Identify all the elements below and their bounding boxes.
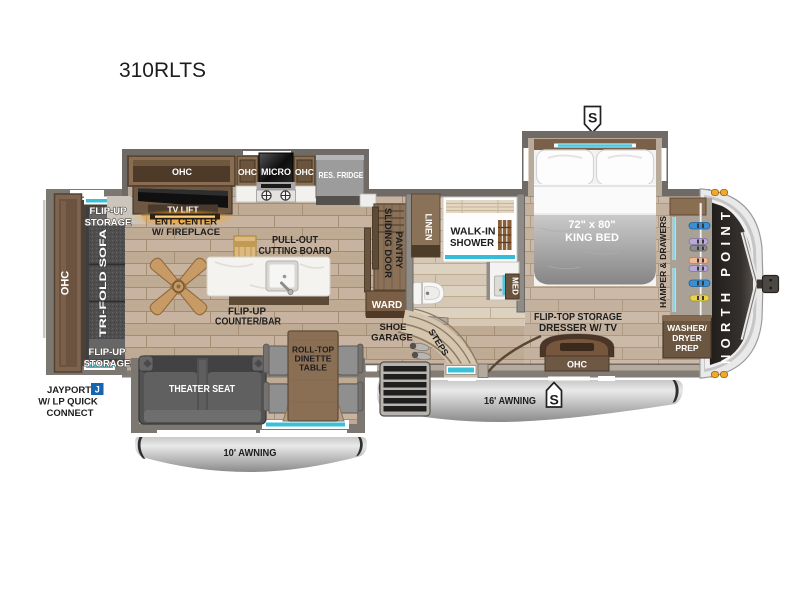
svg-text:STORAGE: STORAGE bbox=[84, 359, 131, 370]
svg-text:KING BED: KING BED bbox=[565, 232, 619, 244]
svg-text:HAMPER & DRAWERS: HAMPER & DRAWERS bbox=[658, 216, 668, 308]
svg-text:FLIP-TOP STORAGE: FLIP-TOP STORAGE bbox=[534, 312, 622, 323]
svg-text:W/ FIREPLACE: W/ FIREPLACE bbox=[152, 227, 220, 238]
svg-text:SHOE: SHOE bbox=[380, 322, 407, 333]
svg-text:10' AWNING: 10' AWNING bbox=[224, 447, 277, 459]
svg-text:LINEN: LINEN bbox=[424, 214, 434, 241]
svg-text:TABLE: TABLE bbox=[299, 363, 327, 373]
svg-text:DRESSER W/ TV: DRESSER W/ TV bbox=[539, 323, 617, 334]
svg-text:GARAGE: GARAGE bbox=[371, 333, 413, 344]
svg-text:COUNTER/BAR: COUNTER/BAR bbox=[215, 316, 281, 328]
svg-text:PREP: PREP bbox=[675, 343, 698, 353]
svg-text:OHC: OHC bbox=[60, 271, 72, 296]
svg-text:WASHER/: WASHER/ bbox=[667, 323, 707, 333]
svg-text:J: J bbox=[95, 385, 100, 395]
svg-text:DRYER: DRYER bbox=[672, 333, 701, 343]
svg-text:OHC: OHC bbox=[567, 360, 588, 370]
svg-text:SHOWER: SHOWER bbox=[450, 238, 495, 249]
svg-text:S: S bbox=[550, 392, 559, 408]
svg-text:RES. FRIDGE: RES. FRIDGE bbox=[319, 170, 364, 180]
svg-text:OHC: OHC bbox=[238, 167, 257, 177]
svg-text:STORAGE: STORAGE bbox=[85, 218, 132, 229]
svg-text:TRI-FOLD SOFA: TRI-FOLD SOFA bbox=[98, 229, 109, 337]
svg-text:WALK-IN: WALK-IN bbox=[451, 227, 496, 238]
svg-text:OHC: OHC bbox=[295, 167, 314, 177]
svg-text:72" x 80": 72" x 80" bbox=[568, 219, 615, 231]
svg-text:MED: MED bbox=[511, 277, 520, 295]
svg-text:CUTTING BOARD: CUTTING BOARD bbox=[259, 245, 332, 257]
svg-text:OHC: OHC bbox=[172, 167, 193, 177]
svg-text:ENT. CENTER: ENT. CENTER bbox=[155, 217, 217, 228]
svg-text:THEATER SEAT: THEATER SEAT bbox=[169, 383, 235, 395]
svg-text:MICRO: MICRO bbox=[261, 167, 291, 177]
svg-text:FLIP-UP: FLIP-UP bbox=[89, 347, 127, 358]
svg-text:310RLTS: 310RLTS bbox=[119, 59, 206, 82]
svg-text:CONNECT: CONNECT bbox=[47, 408, 94, 419]
svg-text:WARD: WARD bbox=[372, 300, 403, 311]
svg-text:PANTRY: PANTRY bbox=[393, 232, 404, 270]
svg-text:JAYPORT: JAYPORT bbox=[47, 385, 91, 396]
svg-text:16' AWNING: 16' AWNING bbox=[484, 395, 536, 407]
svg-text:FLIP-UP: FLIP-UP bbox=[90, 206, 128, 217]
svg-text:S: S bbox=[588, 110, 597, 126]
svg-text:W/ LP QUICK: W/ LP QUICK bbox=[38, 397, 98, 408]
svg-text:SLIDING DOOR: SLIDING DOOR bbox=[382, 208, 393, 278]
